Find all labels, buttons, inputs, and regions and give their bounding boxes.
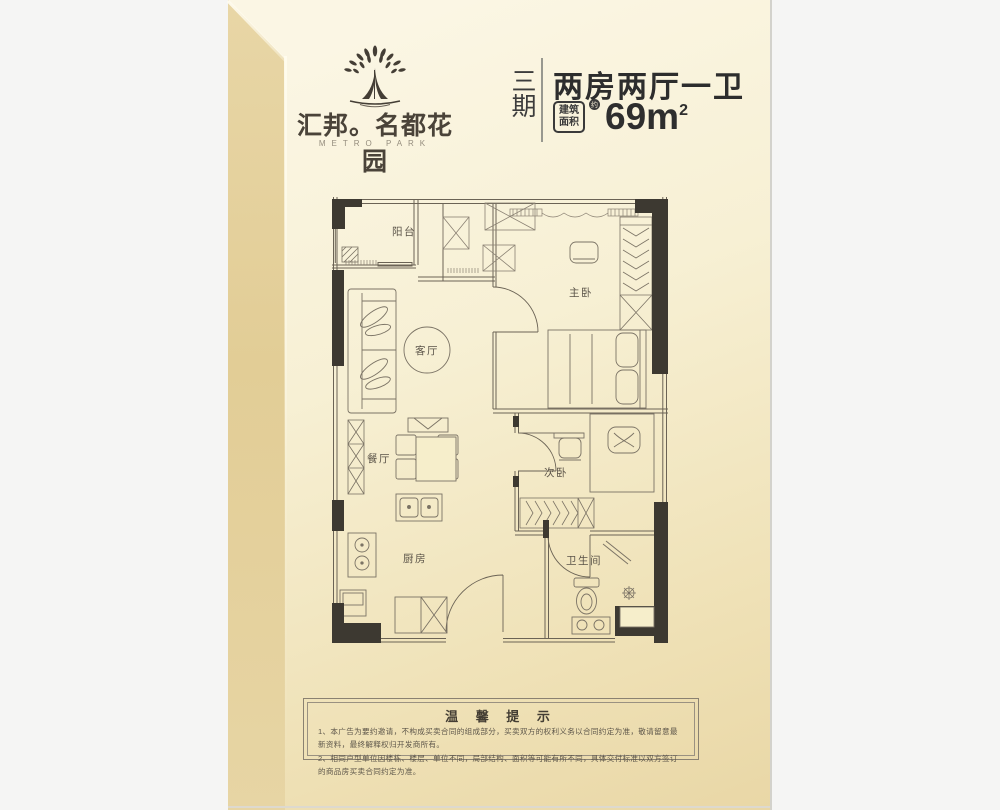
tree-logo-icon [338, 44, 412, 108]
room-label-dining: 餐厅 [367, 452, 391, 465]
page-fold-shadow [228, 0, 285, 810]
area-badge-line2: 面积 [559, 117, 579, 129]
room-label-second: 次卧 [544, 466, 568, 479]
stove-icon [348, 533, 376, 577]
area-badge-line1: 建筑 [559, 105, 579, 117]
building-area-badge: 建筑 面积 [553, 101, 585, 133]
page-fold-highlight-vertical [284, 56, 287, 806]
desk-chair-icon [518, 433, 584, 460]
notice-box: 温 馨 提 示 1、本广告为要约邀请，不构成买卖合同的组成部分，买卖双方的权利义… [303, 698, 699, 760]
sofa-icon [348, 289, 396, 413]
room-label-living: 客厅 [415, 344, 439, 357]
second-wardrobe-icon [520, 498, 594, 528]
phase-label: 三期 [504, 68, 538, 118]
room-label-balcony: 阳台 [392, 225, 416, 238]
area-superscript: 2 [679, 102, 688, 119]
stool-icon [570, 242, 598, 263]
floorplan-drawing: 阳台 客厅 餐厅 主卧 次卧 厨房 卫生间 [332, 197, 668, 650]
approx-dot: 约 [589, 99, 600, 110]
room-label-kitchen: 厨房 [403, 552, 427, 565]
room-label-master: 主卧 [569, 286, 593, 299]
notice-line-2: 2、相同户型单位因楼栋、楼层、单位不同，局部结构、面积等可能有所不同，具体交付标… [318, 752, 684, 779]
area-value: 69m2 [605, 98, 688, 135]
tv-bench-icon [408, 418, 448, 432]
toilet-icon [574, 578, 599, 614]
brand-name-english: METRO PARK [290, 139, 460, 148]
faucet-icon [622, 586, 636, 600]
balcony-washer-icon [342, 247, 358, 262]
dining-set-icon [396, 435, 458, 481]
second-bed-icon [590, 414, 654, 492]
poster-root: 汇邦。名都花园 METRO PARK 三期 两房两厅一卫 建筑 面积 约 69m… [0, 0, 1000, 810]
kitchen-sink-icon [396, 494, 442, 521]
fridge-cabinet-icon [395, 597, 447, 633]
bath-vanity-icon [572, 617, 610, 634]
notice-box-inner: 温 馨 提 示 1、本广告为要约邀请，不构成买卖合同的组成部分，买卖双方的权利义… [307, 702, 695, 756]
room-label-bath: 卫生间 [566, 554, 602, 567]
floorplan: 阳台 客厅 餐厅 主卧 次卧 厨房 卫生间 [332, 197, 668, 650]
notice-line-1: 1、本广告为要约邀请，不构成买卖合同的组成部分，买卖双方的权利义务以合同约定为准… [318, 725, 684, 752]
shower-icon [603, 541, 631, 564]
notice-title: 温 馨 提 示 [318, 706, 684, 725]
area-row: 建筑 面积 约 69m2 [553, 98, 688, 138]
master-bed-icon [548, 330, 646, 408]
page-bottom-edge [228, 806, 770, 808]
bath-counter-icon [620, 607, 654, 627]
dining-cabinet-icon [348, 420, 364, 494]
header-divider [541, 58, 543, 142]
master-wardrobe-icon [620, 217, 652, 330]
